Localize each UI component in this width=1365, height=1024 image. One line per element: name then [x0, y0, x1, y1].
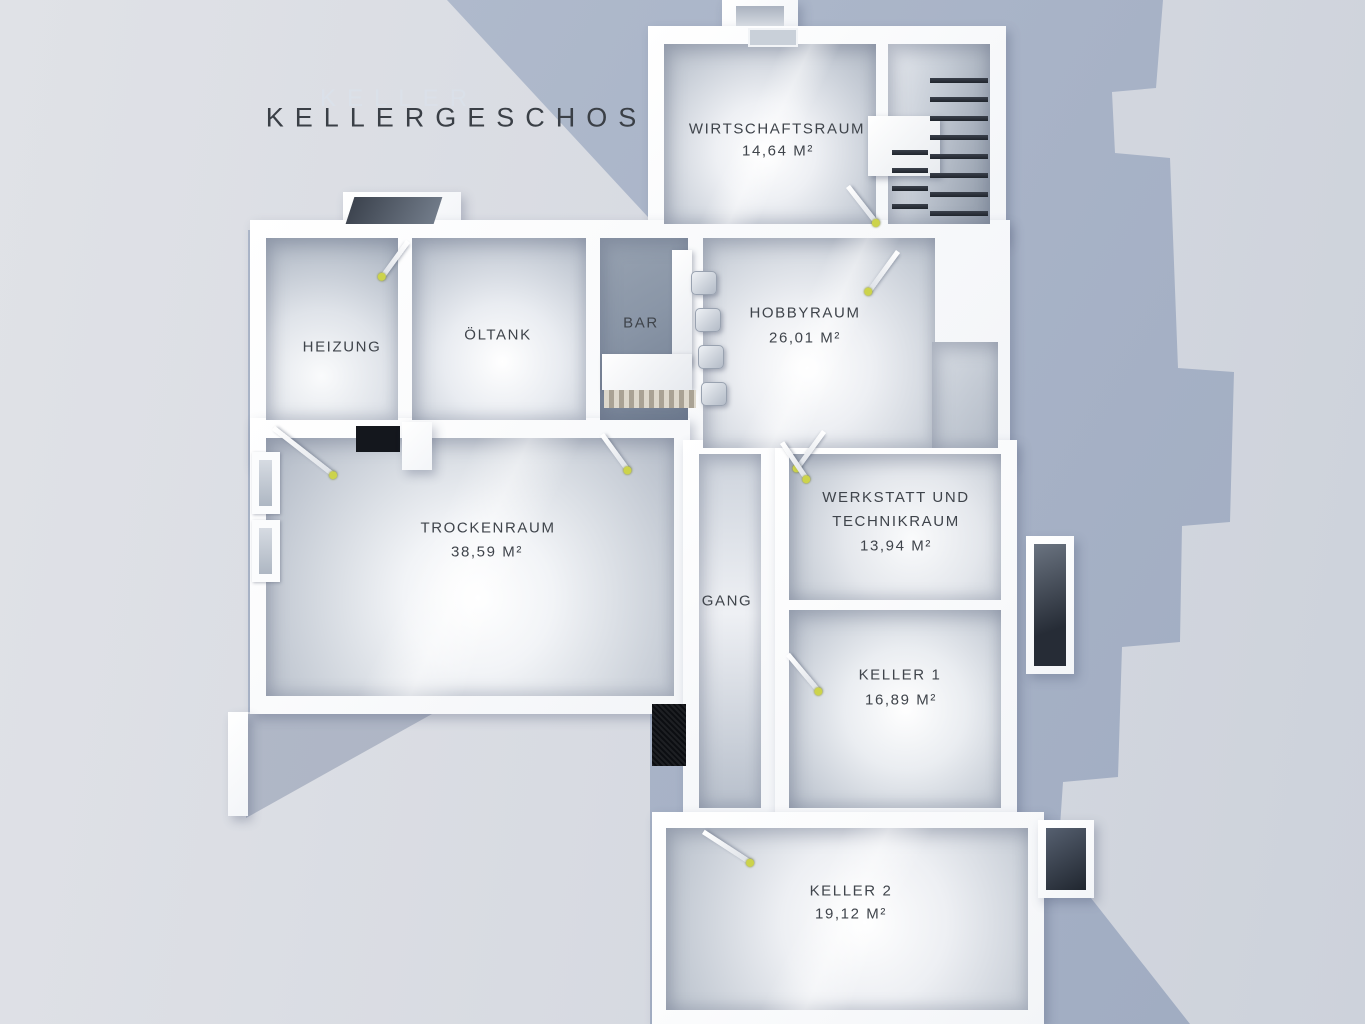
stair-step	[930, 192, 988, 197]
stair-step	[930, 173, 988, 178]
stair-step	[892, 204, 928, 209]
stair-step	[930, 78, 988, 83]
room-label-gang: GANG	[702, 593, 753, 610]
stair-step	[930, 154, 988, 159]
chimney-opening	[736, 6, 784, 26]
floor-gang	[699, 454, 761, 808]
bar-stool	[695, 308, 721, 332]
bar-stool	[691, 271, 717, 295]
light-well-1-shaft	[1034, 544, 1066, 666]
room-label-trockenraum: TROCKENRAUM	[420, 520, 555, 537]
room-area-keller2: 19,12 M²	[815, 906, 887, 923]
floor-heizung	[266, 238, 398, 420]
floor-plan-scene: KELLER KELLERGESCHOSS	[0, 0, 1365, 1024]
room-label-keller2: KELLER 2	[810, 883, 893, 900]
basement-window-2-glass	[259, 528, 272, 574]
room-area-keller1: 16,89 M²	[865, 692, 937, 709]
stair-step	[930, 135, 988, 140]
room-label-keller1: KELLER 1	[859, 667, 942, 684]
stair-step	[892, 186, 928, 191]
top-wall-window	[748, 28, 798, 47]
bar-stool	[701, 382, 727, 406]
porch-door-opening	[346, 197, 443, 224]
floor-trockenraum	[266, 438, 674, 696]
room-label-hobbyraum: HOBBYRAUM	[749, 305, 860, 322]
stair-step	[930, 97, 988, 102]
floor-title: KELLERGESCHOSS	[266, 103, 677, 134]
light-well-2-shaft	[1046, 828, 1086, 890]
room-area-trockenraum: 38,59 M²	[451, 544, 523, 561]
chimney-shaft-opening	[356, 426, 400, 452]
basement-window-1	[252, 452, 280, 514]
stair-step	[892, 150, 928, 155]
room-area-werkstatt: 13,94 M²	[860, 538, 932, 555]
stair-step	[930, 211, 988, 216]
floor-hobbyraum-ext	[932, 342, 998, 448]
stair-step	[892, 168, 928, 173]
stair-step	[930, 116, 988, 121]
bar-counter-vertical	[672, 250, 692, 366]
wall-stub	[228, 712, 248, 816]
room-label-bar: BAR	[623, 315, 659, 332]
room-label-oeltank: ÖLTANK	[464, 327, 531, 344]
bar-counter-horizontal	[602, 354, 692, 390]
bar-stool	[698, 345, 724, 369]
room-label-werkstatt: WERKSTATT UND TECHNIKRAUM	[796, 486, 996, 534]
room-label-heizung: HEIZUNG	[303, 339, 382, 356]
floor-grate	[652, 704, 686, 766]
room-area-wirtschaftsraum: 14,64 M²	[742, 143, 814, 160]
bar-counter-base	[604, 390, 696, 408]
room-area-hobbyraum: 26,01 M²	[769, 330, 841, 347]
wall-cabinet	[402, 422, 432, 470]
stair-landing	[868, 116, 940, 176]
floor-keller1	[789, 610, 1001, 808]
room-label-wirtschaftsraum: WIRTSCHAFTSRAUM	[689, 121, 865, 138]
basement-window-2	[252, 520, 280, 582]
basement-window-1-glass	[259, 460, 272, 506]
